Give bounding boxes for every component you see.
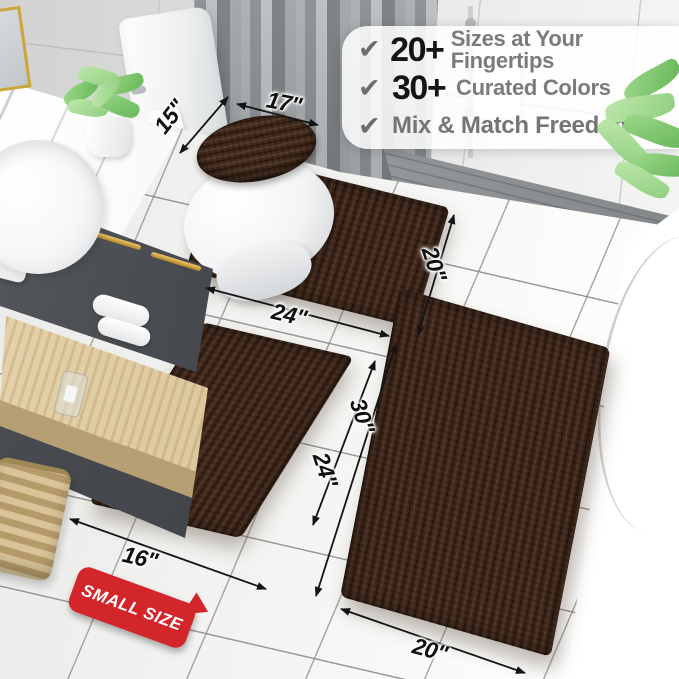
check-icon: ✔: [358, 36, 390, 63]
check-icon: ✔: [358, 113, 392, 140]
feature-stat: 30+: [392, 71, 456, 105]
product-scene: 15" 17" 24" 20" 16" 24" 30" 20" ✔ 20+ Si…: [0, 0, 679, 679]
feature-stat: 20+: [390, 33, 451, 67]
corner-plant: [583, 66, 679, 202]
feature-label: Sizes at Your Fingertips: [451, 28, 679, 72]
feature-row: ✔ 20+ Sizes at Your Fingertips: [358, 30, 679, 69]
check-icon: ✔: [358, 75, 392, 102]
